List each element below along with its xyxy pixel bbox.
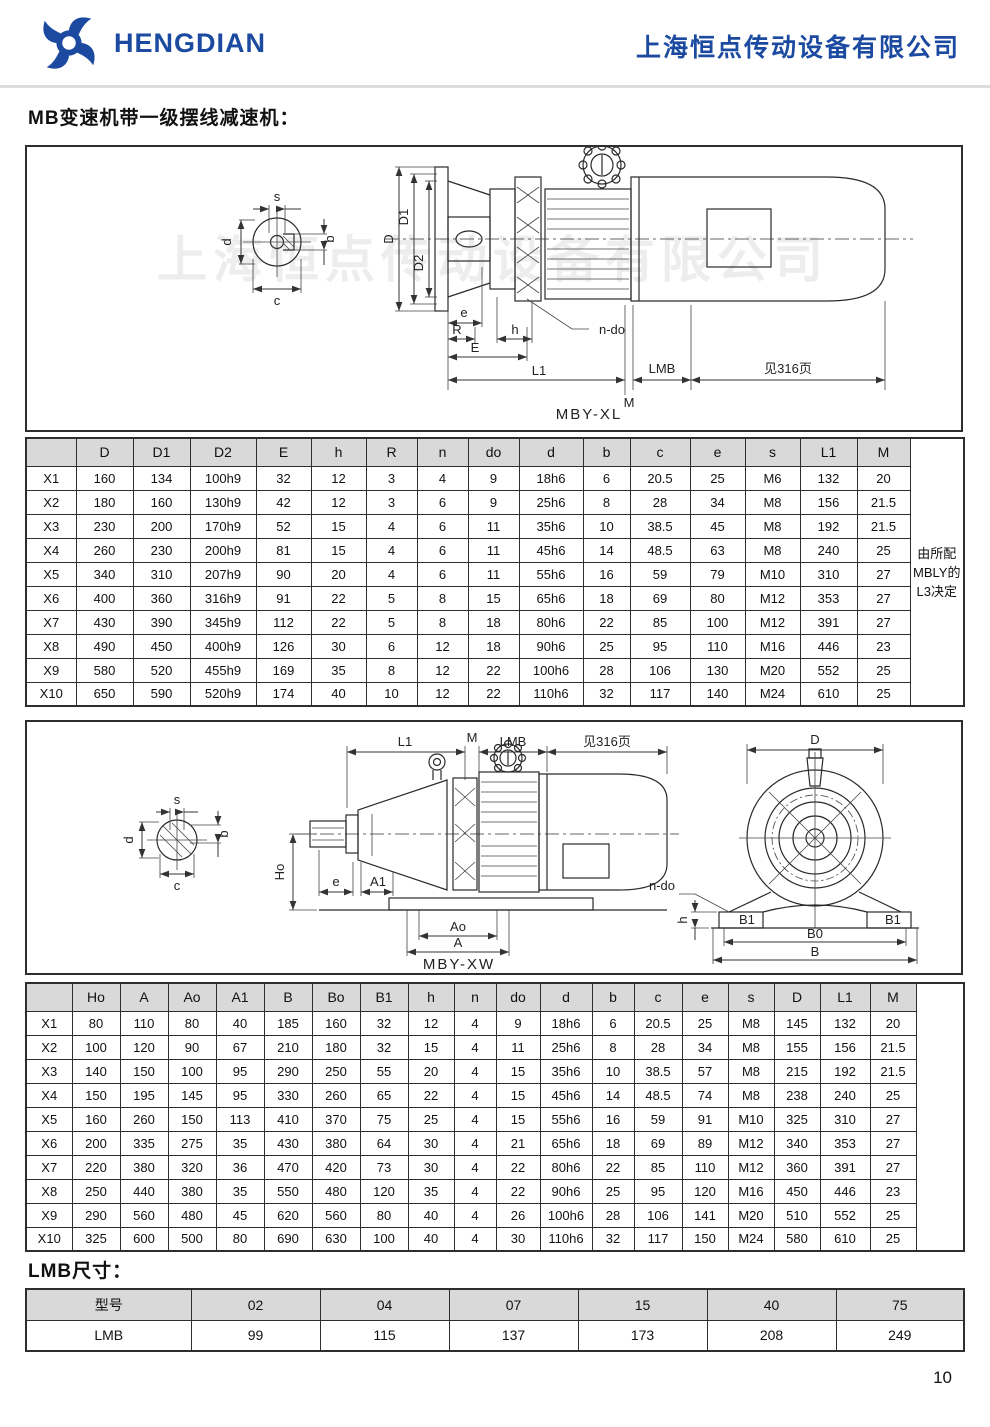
cell: 500 (168, 1227, 216, 1251)
row-header: X7 (26, 1155, 72, 1179)
cell: 240 (820, 1083, 870, 1107)
column-header: D2 (190, 438, 256, 466)
row-header: X10 (26, 682, 76, 706)
cell: 11 (468, 514, 519, 538)
cell: 100 (690, 610, 745, 634)
dimension-table-mby-xl: DD1D2EhRndodbcesL1M由所配MBLY的L3决定X11601341… (25, 437, 965, 707)
column-header: 型号 (26, 1289, 191, 1320)
cell: 80 (216, 1227, 264, 1251)
cell: 200h9 (190, 538, 256, 562)
table-row: X21001209067210180321541125h682834M81551… (26, 1035, 964, 1059)
cell: 380 (168, 1179, 216, 1203)
cell: 370 (312, 1107, 360, 1131)
cell: 12 (417, 682, 468, 706)
dim-label-D1: D1 (396, 209, 411, 226)
cell: 420 (312, 1155, 360, 1179)
cell: 380 (120, 1155, 168, 1179)
row-header: X4 (26, 538, 76, 562)
cell: 45h6 (519, 538, 583, 562)
cell: 95 (216, 1059, 264, 1083)
cell: 290 (72, 1203, 120, 1227)
cell: 89 (682, 1131, 728, 1155)
cell: M12 (745, 586, 800, 610)
cell: 120 (682, 1179, 728, 1203)
cell: 510 (774, 1203, 820, 1227)
cell: 132 (820, 1011, 870, 1035)
cell: 48.5 (634, 1083, 682, 1107)
cell: 115 (320, 1320, 449, 1351)
cell: 580 (774, 1227, 820, 1251)
cell: 650 (76, 682, 133, 706)
cell: 18 (583, 586, 630, 610)
cell: 85 (634, 1155, 682, 1179)
lmb-size-table: 型号020407154075LMB99115137173208249 (25, 1288, 965, 1352)
cell: 10 (366, 682, 417, 706)
cell: 4 (454, 1203, 496, 1227)
cell: 81 (256, 538, 311, 562)
cell: 345h9 (190, 610, 256, 634)
cell: 32 (360, 1035, 408, 1059)
cell: 480 (168, 1203, 216, 1227)
cell: 250 (72, 1179, 120, 1203)
row-header: X2 (26, 490, 76, 514)
cell: M20 (745, 658, 800, 682)
cell: 160 (72, 1107, 120, 1131)
row-header: X9 (26, 658, 76, 682)
dim-label-L1: L1 (532, 363, 546, 378)
cell: 25 (592, 1179, 634, 1203)
cell: 6 (417, 562, 468, 586)
column-header: A1 (216, 983, 264, 1011)
cell: 34 (682, 1035, 728, 1059)
cell: 25 (870, 1083, 916, 1107)
cell: 40 (311, 682, 366, 706)
drawing-caption: MBY-XL (556, 406, 622, 423)
dim-label-e: e (332, 874, 339, 889)
column-header: D (76, 438, 133, 466)
column-header: c (634, 983, 682, 1011)
cell: 64 (360, 1131, 408, 1155)
cell: 20 (870, 1011, 916, 1035)
cell: 316h9 (190, 586, 256, 610)
cell: 69 (630, 586, 690, 610)
cell: 150 (72, 1083, 120, 1107)
technical-drawing-mby-xl: 上海恒点传动设备有限公司 s d (25, 145, 963, 432)
cell: 25 (870, 1227, 916, 1251)
mby-xw-figure: s b d c (27, 722, 961, 973)
cell: 10 (583, 514, 630, 538)
cell: 100h9 (190, 466, 256, 490)
cell: 27 (870, 1155, 916, 1179)
cell: 32 (583, 682, 630, 706)
cell: 65h6 (540, 1131, 592, 1155)
column-header: M (870, 983, 916, 1011)
cell: 4 (454, 1179, 496, 1203)
cell: 590 (133, 682, 190, 706)
column-header: n (417, 438, 468, 466)
cell: M12 (728, 1131, 774, 1155)
cell: 110 (120, 1011, 168, 1035)
cell: 95 (216, 1083, 264, 1107)
cell: 4 (454, 1083, 496, 1107)
cell: 106 (630, 658, 690, 682)
cell: 4 (417, 466, 468, 490)
cell: 145 (774, 1011, 820, 1035)
column-header: d (540, 983, 592, 1011)
cell: 110 (682, 1155, 728, 1179)
cell: M24 (745, 682, 800, 706)
hengdian-logo-icon (38, 12, 100, 74)
dim-label-n-do: n-do (649, 878, 675, 893)
cell: 440 (120, 1179, 168, 1203)
table-row: X10650590520h917440101222110h632117140M2… (26, 682, 964, 706)
cell: 20 (408, 1059, 454, 1083)
cell: M16 (728, 1179, 774, 1203)
cell: 192 (800, 514, 857, 538)
cell: 65 (360, 1083, 408, 1107)
cell: 120 (360, 1179, 408, 1203)
cell: 16 (592, 1107, 634, 1131)
cell: M8 (745, 538, 800, 562)
cell: 45 (216, 1203, 264, 1227)
dim-label-c: c (274, 293, 281, 308)
cell: 130 (690, 658, 745, 682)
cell: 360 (774, 1155, 820, 1179)
cell: M8 (745, 514, 800, 538)
cell: 610 (820, 1227, 870, 1251)
cell: 134 (133, 466, 190, 490)
column-header: s (745, 438, 800, 466)
cell: 28 (583, 658, 630, 682)
cell: M8 (728, 1011, 774, 1035)
dim-label-R: R (452, 322, 461, 337)
cell: 220 (72, 1155, 120, 1179)
row-header: X5 (26, 562, 76, 586)
cell: 620 (264, 1203, 312, 1227)
cell: 15 (496, 1083, 540, 1107)
dim-label-h: h (511, 322, 518, 337)
row-header: X2 (26, 1035, 72, 1059)
company-name: 上海恒点传动设备有限公司 (636, 28, 960, 64)
cell: 4 (454, 1107, 496, 1131)
cell: 25 (857, 538, 910, 562)
table-row: X8490450400h9126306121890h62595110M16446… (26, 634, 964, 658)
cell: 80h6 (540, 1155, 592, 1179)
cell: 192 (820, 1059, 870, 1083)
cell: 35 (216, 1131, 264, 1155)
table-row: LMB99115137173208249 (26, 1320, 964, 1351)
column-header (26, 983, 72, 1011)
cell: 38.5 (634, 1059, 682, 1083)
row-header: X5 (26, 1107, 72, 1131)
cell: 450 (133, 634, 190, 658)
dim-label-b: b (216, 830, 231, 837)
cell: 6 (366, 634, 417, 658)
column-header: 75 (836, 1289, 964, 1320)
cell: 552 (820, 1203, 870, 1227)
cell: 55h6 (540, 1107, 592, 1131)
cell: 353 (820, 1131, 870, 1155)
cell: 120 (120, 1035, 168, 1059)
row-header: LMB (26, 1320, 191, 1351)
cell: 80 (360, 1203, 408, 1227)
cell: 391 (820, 1155, 870, 1179)
cell: 91 (682, 1107, 728, 1131)
cell: 325 (774, 1107, 820, 1131)
cell: 560 (120, 1203, 168, 1227)
header-row: DD1D2EhRndodbcesL1M由所配MBLY的L3决定 (26, 438, 964, 466)
dim-label-see316: 见316页 (583, 734, 631, 749)
column-header: do (468, 438, 519, 466)
cell: 57 (682, 1059, 728, 1083)
cell: 117 (630, 682, 690, 706)
cell: 35h6 (519, 514, 583, 538)
row-header: X7 (26, 610, 76, 634)
column-header: e (690, 438, 745, 466)
cell: 20 (857, 466, 910, 490)
cell: 200 (133, 514, 190, 538)
cell: M8 (728, 1035, 774, 1059)
column-header: 07 (449, 1289, 578, 1320)
table-row: X6400360316h99122581565h6186980M1235327 (26, 586, 964, 610)
cell: 275 (168, 1131, 216, 1155)
cell: 208 (707, 1320, 836, 1351)
cell: 30 (408, 1155, 454, 1179)
cell: 27 (857, 562, 910, 586)
logo-text: HENGDIAN (114, 28, 266, 59)
cell: 80 (690, 586, 745, 610)
cell: 35h6 (540, 1059, 592, 1083)
cell: 100h6 (519, 658, 583, 682)
column-header: 04 (320, 1289, 449, 1320)
cell: 15 (311, 514, 366, 538)
cell: 20 (311, 562, 366, 586)
table-row: X8250440380355504801203542290h62595120M1… (26, 1179, 964, 1203)
cell: 15 (468, 586, 519, 610)
cell: M6 (745, 466, 800, 490)
cell: 28 (634, 1035, 682, 1059)
column-header: L1 (820, 983, 870, 1011)
cell: 4 (366, 514, 417, 538)
cell: 23 (857, 634, 910, 658)
column-header: D1 (133, 438, 190, 466)
cell: 12 (311, 490, 366, 514)
cell: 21.5 (857, 514, 910, 538)
cell: 137 (449, 1320, 578, 1351)
cell: 310 (820, 1107, 870, 1131)
cell: 23 (870, 1179, 916, 1203)
cell: 430 (76, 610, 133, 634)
cell: 6 (417, 490, 468, 514)
cell: 400 (76, 586, 133, 610)
cell: 100 (168, 1059, 216, 1083)
cell: 21.5 (870, 1035, 916, 1059)
cell: M10 (745, 562, 800, 586)
cell: 100h6 (540, 1203, 592, 1227)
cell: M8 (745, 490, 800, 514)
column-header: R (366, 438, 417, 466)
cell: 4 (454, 1059, 496, 1083)
cell: 455h9 (190, 658, 256, 682)
cell: 67 (216, 1035, 264, 1059)
page-number: 10 (933, 1368, 952, 1388)
cell: 15 (408, 1035, 454, 1059)
cell: M24 (728, 1227, 774, 1251)
row-header: X10 (26, 1227, 72, 1251)
dim-label-D2: D2 (411, 255, 426, 272)
cell: 10 (592, 1059, 634, 1083)
table-note: 由所配MBLY的L3决定 (910, 438, 964, 706)
cell: 14 (592, 1083, 634, 1107)
cell: 63 (690, 538, 745, 562)
cell: 4 (454, 1035, 496, 1059)
cell: 80 (168, 1011, 216, 1035)
technical-drawing-mby-xw: s b d c (25, 720, 963, 975)
cell: 100 (72, 1035, 120, 1059)
cell: 18 (468, 634, 519, 658)
cell: 8 (592, 1035, 634, 1059)
cell: M20 (728, 1203, 774, 1227)
cell: 5 (366, 586, 417, 610)
dim-label-LMB: LMB (649, 361, 676, 376)
cell: 552 (800, 658, 857, 682)
cell: M8 (728, 1083, 774, 1107)
cell: 14 (583, 538, 630, 562)
header-row: 型号020407154075 (26, 1289, 964, 1320)
cell: 110h6 (519, 682, 583, 706)
cell: 170h9 (190, 514, 256, 538)
cell: 290 (264, 1059, 312, 1083)
cell: M12 (745, 610, 800, 634)
cell: 22 (311, 586, 366, 610)
cell: 100 (360, 1227, 408, 1251)
cell: 3 (366, 490, 417, 514)
cell: 4 (366, 562, 417, 586)
cell: 240 (800, 538, 857, 562)
section-title: MB变速机带一级摆线减速机： (28, 103, 300, 130)
column-header (26, 438, 76, 466)
table-row: X415019514595330260652241545h61448.574M8… (26, 1083, 964, 1107)
cell: 30 (408, 1131, 454, 1155)
cell: 21.5 (857, 490, 910, 514)
cell: 470 (264, 1155, 312, 1179)
column-header: d (519, 438, 583, 466)
cell: 16 (583, 562, 630, 586)
cell: 8 (366, 658, 417, 682)
table-note (916, 983, 964, 1251)
watermark-text: 上海恒点传动设备有限公司 (157, 232, 829, 288)
cell: 150 (168, 1107, 216, 1131)
cell: 40 (408, 1227, 454, 1251)
cell: 6 (583, 466, 630, 490)
cell: 80 (72, 1011, 120, 1035)
row-header: X3 (26, 514, 76, 538)
cell: 22 (592, 1155, 634, 1179)
cell: 207h9 (190, 562, 256, 586)
cell: 55 (360, 1059, 408, 1083)
column-header: b (583, 438, 630, 466)
cell: 22 (496, 1179, 540, 1203)
cell: 11 (468, 538, 519, 562)
cell: 25 (690, 466, 745, 490)
dim-label-A: A (454, 935, 463, 950)
cell: 690 (264, 1227, 312, 1251)
column-header: Bo (312, 983, 360, 1011)
column-header: E (256, 438, 311, 466)
cell: 20.5 (630, 466, 690, 490)
cell: 200 (72, 1131, 120, 1155)
cell: 74 (682, 1083, 728, 1107)
cell: 11 (496, 1035, 540, 1059)
cell: 9 (468, 466, 519, 490)
dim-label-L1: L1 (398, 734, 412, 749)
cell: 40 (216, 1011, 264, 1035)
table-row: X620033527535430380643042165h6186989M123… (26, 1131, 964, 1155)
cell: 117 (634, 1227, 682, 1251)
dim-label-c: c (174, 878, 181, 893)
cell: 18h6 (540, 1011, 592, 1035)
cell: 12 (417, 658, 468, 682)
cell: 90 (168, 1035, 216, 1059)
column-header: 40 (707, 1289, 836, 1320)
cell: 335 (120, 1131, 168, 1155)
cell: 25 (682, 1011, 728, 1035)
cell: 446 (800, 634, 857, 658)
column-header: h (408, 983, 454, 1011)
cell: 169 (256, 658, 311, 682)
cell: 340 (76, 562, 133, 586)
dim-label-M: M (467, 730, 478, 745)
cell: 330 (264, 1083, 312, 1107)
table-row: X3230200170h95215461135h61038.545M819221… (26, 514, 964, 538)
cell: 310 (800, 562, 857, 586)
row-header: X1 (26, 1011, 72, 1035)
cell: 48.5 (630, 538, 690, 562)
cell: 141 (682, 1203, 728, 1227)
cell: 22 (408, 1083, 454, 1107)
cell: 3 (366, 466, 417, 490)
table-row: X5340310207h99020461155h6165979M1031027 (26, 562, 964, 586)
cell: 22 (468, 658, 519, 682)
cell: 52 (256, 514, 311, 538)
cell: 21 (496, 1131, 540, 1155)
cell: M10 (728, 1107, 774, 1131)
cell: 480 (312, 1179, 360, 1203)
cell: 8 (417, 610, 468, 634)
dim-label-M: M (624, 395, 635, 410)
table-row: X1160134100h9321234918h6620.525M613220 (26, 466, 964, 490)
cell: 430 (264, 1131, 312, 1155)
cell: 12 (408, 1011, 454, 1035)
cell: 160 (133, 490, 190, 514)
cell: 391 (800, 610, 857, 634)
cell: 156 (800, 490, 857, 514)
dim-label-LMB: LMB (500, 734, 527, 749)
dim-label-B0: B0 (807, 926, 823, 941)
cell: 26 (496, 1203, 540, 1227)
cell: 112 (256, 610, 311, 634)
cell: 25 (408, 1107, 454, 1131)
cell: 32 (256, 466, 311, 490)
cell: 160 (76, 466, 133, 490)
table-row: X5160260150113410370752541555h6165991M10… (26, 1107, 964, 1131)
dim-label-A1: A1 (370, 874, 386, 889)
cell: 4 (454, 1131, 496, 1155)
cell: 360 (133, 586, 190, 610)
dim-label-D: D (810, 732, 819, 747)
cell: 30 (496, 1227, 540, 1251)
cell: 25h6 (540, 1035, 592, 1059)
